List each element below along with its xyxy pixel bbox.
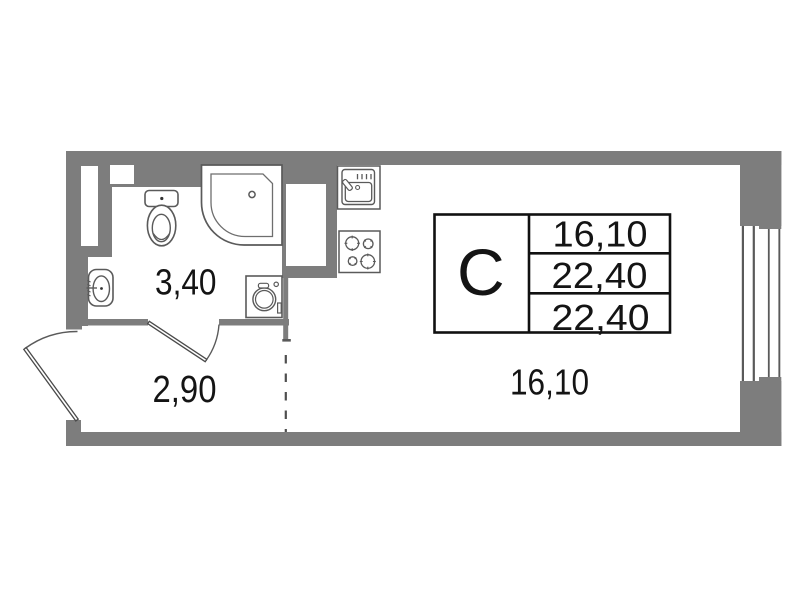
svg-text:16,10: 16,10 [510, 362, 589, 403]
svg-text:16,10: 16,10 [553, 214, 648, 255]
svg-text:2,90: 2,90 [153, 369, 217, 411]
svg-text:С: С [457, 235, 505, 309]
svg-text:22,40: 22,40 [552, 297, 650, 338]
svg-text:3,40: 3,40 [155, 262, 217, 303]
svg-text:22,40: 22,40 [552, 255, 648, 296]
